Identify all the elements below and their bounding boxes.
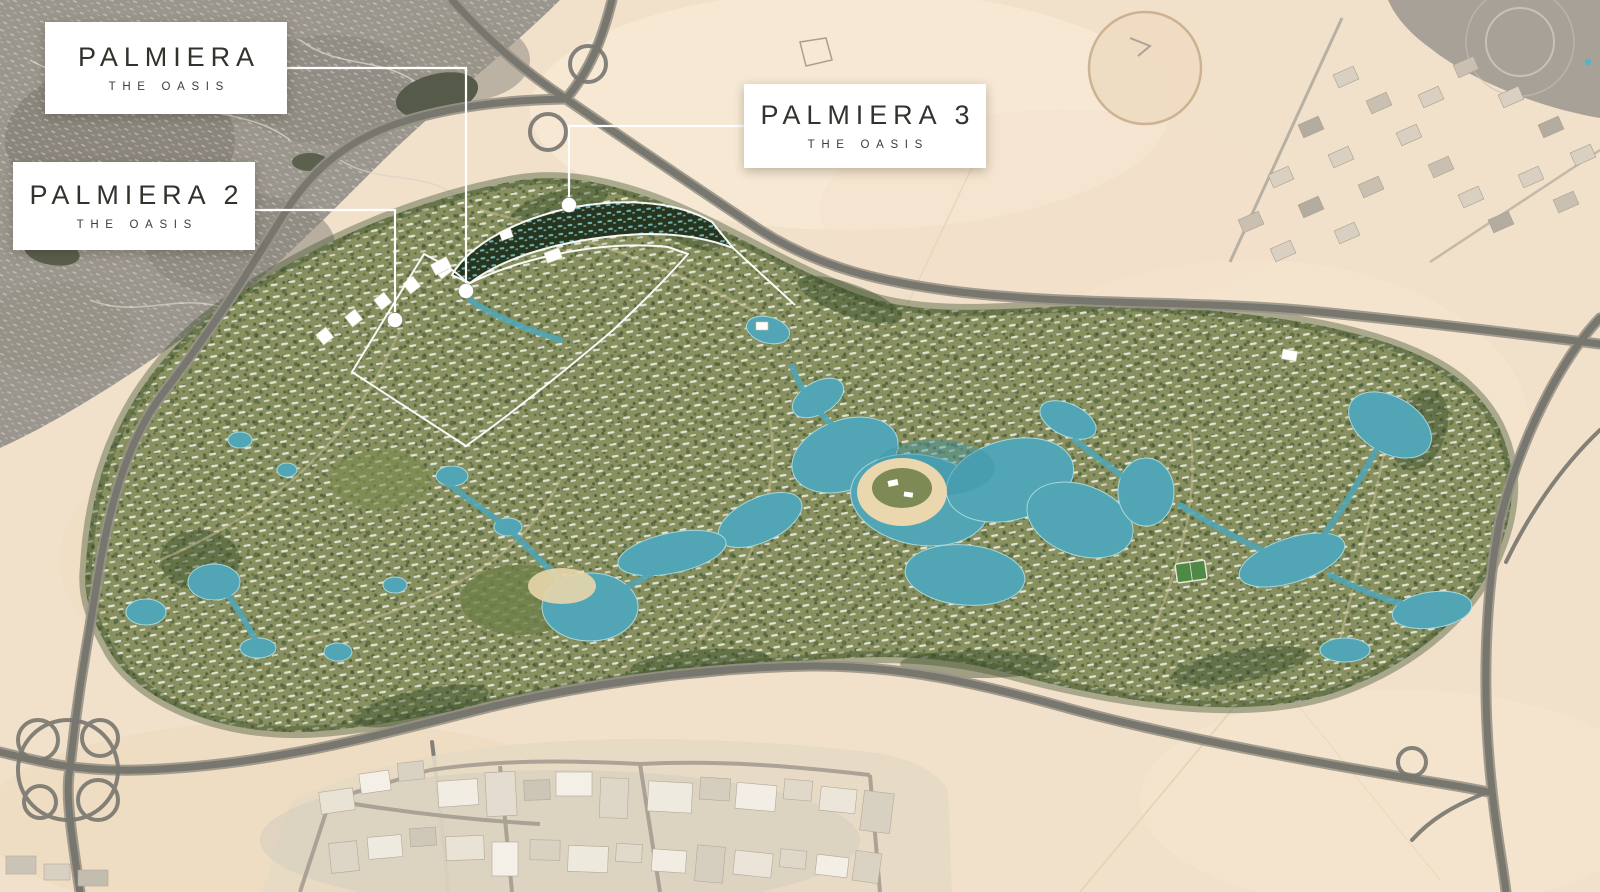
label-palmiera[interactable]: PALMIERA THE OASIS: [45, 22, 287, 114]
label-palmiera-3[interactable]: PALMIERA 3 THE OASIS: [744, 84, 986, 168]
map-marker-palmiera-2[interactable]: [388, 313, 403, 328]
masterplan-viewport: PALMIERA THE OASIS PALMIERA 2 THE OASIS …: [0, 0, 1600, 892]
map-marker-palmiera-3[interactable]: [562, 198, 577, 213]
label-palmiera-2[interactable]: PALMIERA 2 THE OASIS: [13, 162, 255, 250]
label-palmiera-3-title: PALMIERA 3: [755, 101, 976, 129]
sports-field: [1175, 560, 1207, 583]
label-palmiera-subtitle: THE OASIS: [102, 81, 230, 93]
label-palmiera-title: PALMIERA: [72, 43, 260, 71]
label-palmiera-3-subtitle: THE OASIS: [801, 139, 929, 151]
desert-circular-track: [1089, 12, 1201, 124]
label-palmiera-2-subtitle: THE OASIS: [70, 219, 198, 231]
label-palmiera-2-title: PALMIERA 2: [24, 181, 245, 209]
map-marker-palmiera[interactable]: [459, 284, 474, 299]
